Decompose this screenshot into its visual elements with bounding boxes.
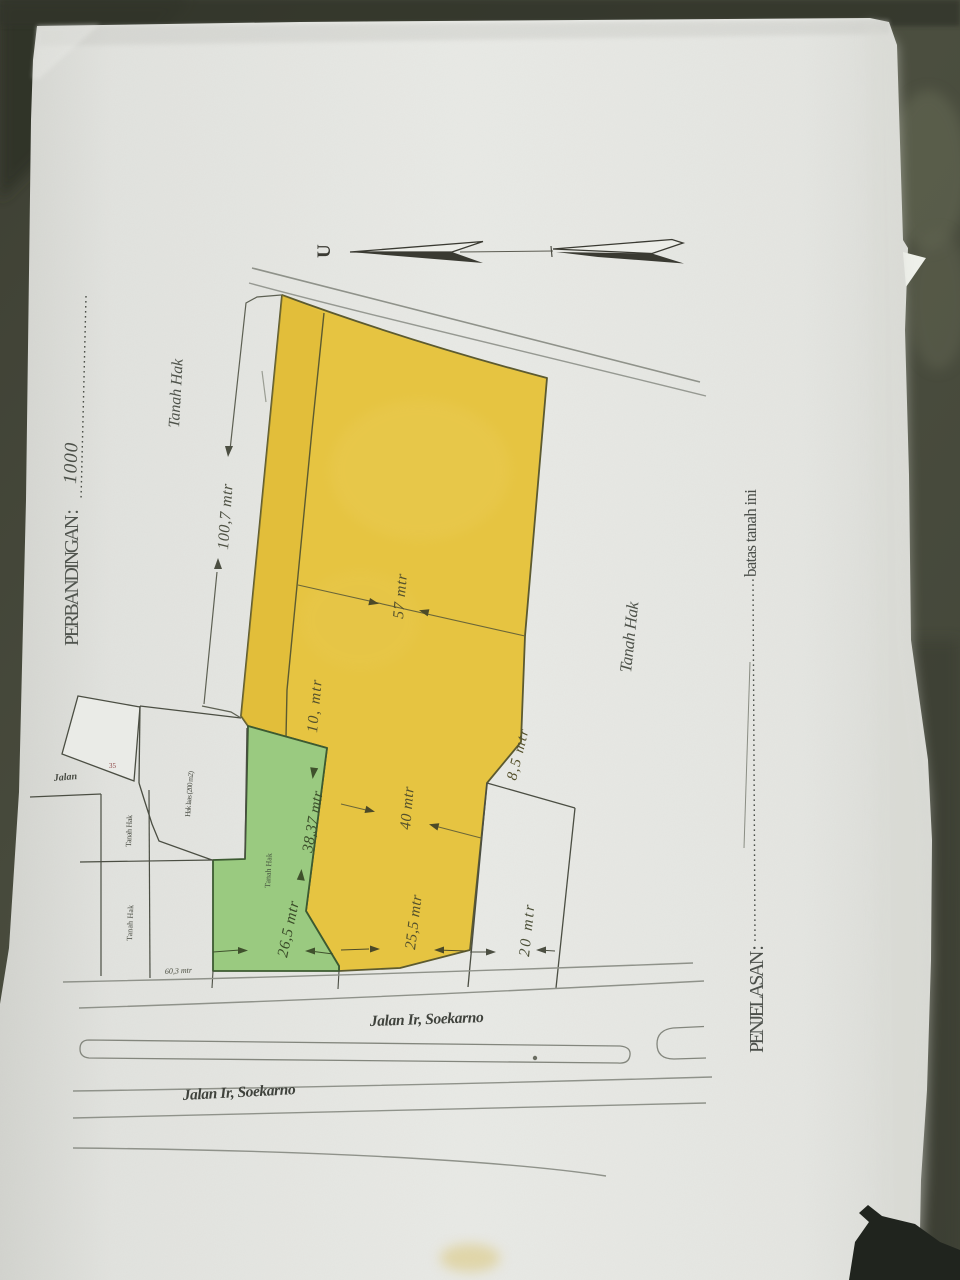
svg-text:batas tanah ini: batas tanah ini [741,489,760,577]
svg-text:PENJELASAN :: PENJELASAN : [746,945,768,1053]
svg-text:PERBANDINGAN :: PERBANDINGAN : [61,509,83,646]
svg-text:Tanah Hak: Tanah Hak [124,815,134,847]
svg-text:1000: 1000 [60,442,82,484]
svg-text:Tanah Hak: Tanah Hak [125,905,135,941]
svg-text:Tanah Hak: Tanah Hak [263,853,274,888]
svg-text:Jalan: Jalan [52,771,78,784]
svg-text:U: U [314,244,335,258]
svg-text:60,3 mtr: 60,3 mtr [165,966,193,976]
svg-text:35: 35 [109,762,117,770]
